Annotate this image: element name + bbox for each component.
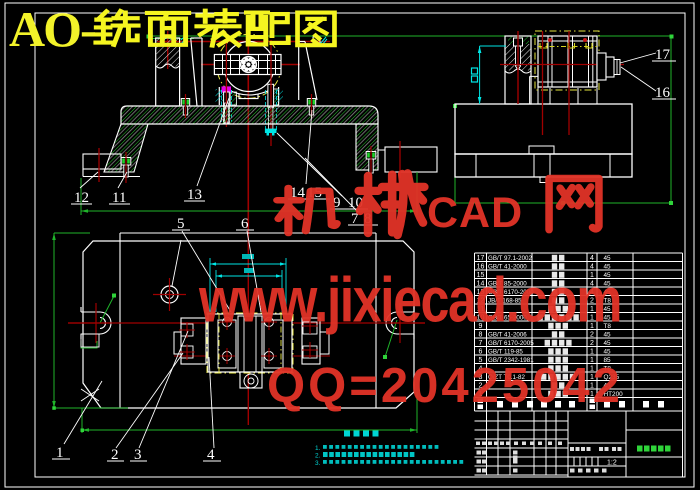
svg-text:1.: 1. <box>315 445 321 452</box>
svg-text:17: 17 <box>655 47 671 63</box>
svg-text:1:2: 1:2 <box>607 460 617 467</box>
svg-text:2: 2 <box>590 340 594 347</box>
svg-text:2.: 2. <box>315 453 321 460</box>
svg-text:2: 2 <box>111 447 119 463</box>
svg-text:www.jixiecad.com: www.jixiecad.com <box>198 265 621 336</box>
svg-text:13: 13 <box>187 187 202 203</box>
svg-text:4: 4 <box>207 447 215 463</box>
svg-text:3: 3 <box>134 447 142 463</box>
svg-text:16: 16 <box>655 85 671 101</box>
svg-text:6: 6 <box>241 216 249 232</box>
svg-text:GB/T 6170-2005: GB/T 6170-2005 <box>488 340 534 347</box>
svg-text:45: 45 <box>604 340 612 347</box>
svg-text:4: 4 <box>590 255 594 262</box>
svg-text:7: 7 <box>479 340 483 347</box>
svg-text:17: 17 <box>477 255 485 262</box>
svg-text:QQ=20425042: QQ=20425042 <box>267 359 623 413</box>
svg-text:AO-: AO- <box>9 1 95 57</box>
svg-text:45: 45 <box>604 349 612 356</box>
svg-text:5: 5 <box>177 216 185 232</box>
svg-text:45: 45 <box>604 255 612 262</box>
svg-text:11: 11 <box>112 190 126 206</box>
svg-text:1: 1 <box>56 445 64 461</box>
svg-text:1: 1 <box>590 349 594 356</box>
svg-text:GB/T 119-85: GB/T 119-85 <box>488 349 523 356</box>
svg-text:GB/T 97.1-2002: GB/T 97.1-2002 <box>488 255 532 262</box>
svg-text:6: 6 <box>479 349 483 356</box>
svg-text:CAD: CAD <box>427 189 523 237</box>
svg-text:3.: 3. <box>315 460 321 467</box>
svg-text:12: 12 <box>74 190 89 206</box>
